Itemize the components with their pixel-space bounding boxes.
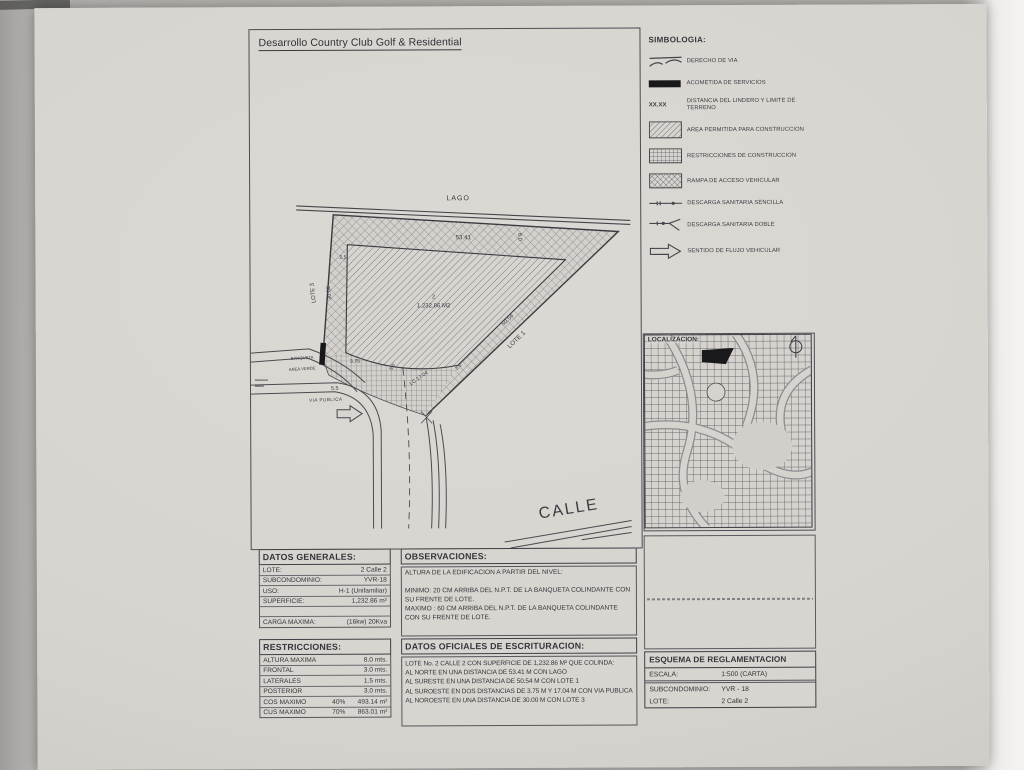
simbologia-legend: SIMBOLOGIA: DERECHO DE VIA ACOMETIDA DE … [644, 31, 813, 338]
descarga-doble-icon [649, 218, 687, 234]
area-verde-label: AREA VERDE [289, 365, 316, 372]
escrituracion-line: AL SUROESTE EN DOS DISTANCIAS DE 3.75 M … [405, 686, 633, 696]
dim-offset-right: 6.0 [516, 233, 522, 241]
legend-item-distancia-lindero: XX.XX DISTANCIA DEL LINDERO Y LIMITE DE … [649, 98, 813, 113]
row-label: SUPERFICIE: [263, 598, 304, 605]
table-row: LOTE: 2 Calle 2 [260, 565, 390, 576]
restricciones-table: RESTRICCIONES: ALTURA MAXIMA 8.0 mts. FR… [259, 639, 391, 719]
esquema-row-subcondominio: SUBCONDOMINIO: YVR - 18 [645, 683, 815, 696]
calle-label: CALLE [538, 496, 601, 523]
notes-box [644, 535, 816, 650]
legend-item-rampa: RAMPA DE ACCESO VEHICULAR [649, 173, 813, 190]
legend-item-area-permitida: AREA PERMITIDA PARA CONSTRUCCION [649, 121, 813, 140]
legend-item-acometida: ACOMETIDA DE SERVICIOS [649, 79, 813, 90]
lago-label: LAGO [446, 195, 469, 202]
datos-generales-title: DATOS GENERALES: [259, 549, 391, 566]
row-value: (16kw) 20Kva [347, 619, 387, 626]
row-label: USO: [263, 588, 279, 595]
legend-label: RESTRICCIONES DE CONSTRUCCION [687, 153, 805, 161]
esquema-box: ESQUEMA DE REGLAMENTACION ESCALA: 1:500 … [644, 651, 816, 709]
row-percent [323, 677, 345, 684]
flow-arrow-icon [337, 406, 362, 422]
row-value: 1,232.86 m² [352, 598, 387, 605]
table-row: SUBCONDOMINIO: YVR-18 [260, 575, 390, 586]
row-value: H-1 (Unifamiliar) [339, 587, 387, 594]
esquema-row-label: LOTE: [649, 698, 721, 705]
fine-print-line [647, 597, 813, 600]
paper-sheet: LAGO 53.41 6.0 2.5 LOTE 3 30.00 2 1,232.… [34, 4, 989, 770]
sentido-flujo-icon [649, 243, 687, 261]
descarga-sencilla-icon [649, 199, 687, 209]
row-label: FRONTAL [263, 667, 323, 674]
legend-item-descarga-sencilla: DESCARGA SANITARIA SENCILLA [649, 198, 813, 209]
row-percent [323, 656, 345, 663]
legend-item-sentido-flujo: SENTIDO DE FLUJO VEHICULAR [649, 242, 813, 261]
legend-label: DESCARGA SANITARIA SENCILLA [687, 200, 805, 208]
map-lots [644, 334, 813, 529]
map-open-area [680, 480, 724, 512]
observaciones-panel: OBSERVACIONES: ALTURA DE LA EDIFICACION … [401, 547, 637, 636]
esquema-row-value: 1:500 (CARTA) [721, 671, 767, 678]
legend-label: DERECHO DE VIA [687, 58, 805, 66]
esquema-row-value: 2 Calle 2 [721, 698, 748, 705]
lot-number: 2 [432, 294, 435, 300]
row-label: CUS MAXIMO [263, 709, 323, 716]
table-row: LATERALES 1.5 mts. [260, 676, 390, 687]
lot-area: 1,232.86 M2 [417, 303, 451, 309]
row-label: ALTURA MAXIMA [263, 656, 323, 663]
derecho-de-via-icon [649, 54, 687, 70]
via-publica-label: VIA PUBLICA [309, 397, 343, 403]
row-value: 1.5 mts. [349, 677, 387, 684]
table-spacer [260, 607, 390, 618]
table-row-carga: CARGA MAXIMA: (16kw) 20Kva [260, 617, 390, 627]
table-row: SUPERFICIE: 1,232.86 m² [260, 596, 390, 607]
esquema-row-label: ESCALA: [649, 671, 721, 678]
esquema-row-value: YVR - 18 [721, 686, 749, 693]
escrituracion-title: DATOS OFICIALES DE ESCRITURACION: [401, 637, 637, 654]
legend-label: RAMPA DE ACCESO VEHICULAR [687, 178, 805, 186]
row-label: LATERALES [263, 677, 323, 684]
esquema-subtable: SUBCONDOMINIO: YVR - 18 LOTE: 2 Calle 2 [645, 682, 815, 708]
row-percent: 70% [323, 709, 345, 716]
restricciones-icon [649, 149, 687, 165]
dim-street: 5.5 [331, 386, 339, 392]
row-percent [323, 667, 345, 674]
datos-generales-body: LOTE: 2 Calle 2 SUBCONDOMINIO: YVR-18 US… [259, 565, 391, 629]
map-roundabout [707, 383, 725, 401]
row-value: 3.0 mts. [349, 688, 387, 695]
observaciones-minimo: MINIMO: 20 CM ARRIBA DEL N.P.T. DE LA BA… [405, 586, 633, 605]
escrituracion-body: LOTE No. 2 CALLE 2 CON SUPERFICIE DE 1,2… [401, 655, 637, 726]
row-label: CARGA MAXIMA: [263, 619, 316, 626]
observaciones-intro: ALTURA DE LA EDIFICACION A PARTIR DEL NI… [405, 568, 633, 578]
localizacion-title: LOCALIZACION: [647, 336, 700, 343]
sheet-title: Desarrollo Country Club Golf & Residenti… [258, 36, 461, 51]
row-value: 3.0 mts. [349, 667, 387, 674]
dim-offset-left: 2.5 [339, 255, 346, 261]
legend-label: DISTANCIA DEL LINDERO Y LIMITE DE TERREN… [687, 98, 805, 113]
escrituracion-line: AL NOROESTE EN UNA DISTANCIA DE 30.00 M … [405, 695, 633, 705]
table-row: CUS MAXIMO 70% 863.01 m² [260, 707, 390, 717]
distancia-lindero-icon: XX.XX [649, 102, 687, 108]
banqueta-label: BANQUETA [291, 355, 314, 361]
datos-generales-table: DATOS GENERALES: LOTE: 2 Calle 2 SUBCOND… [259, 549, 391, 629]
legend-item-restricciones: RESTRICCIONES DE CONSTRUCCION [649, 148, 813, 165]
row-percent: 40% [323, 698, 345, 705]
row-label: POSTERIOR [263, 688, 323, 695]
esquema-row-escala: ESCALA: 1:500 (CARTA) [645, 668, 815, 682]
row-value: 8.0 mts. [349, 656, 387, 663]
observaciones-maximo: MAXIMO : 60 CM ARRIBA DEL N.P.T. DE LA B… [405, 604, 633, 623]
restricciones-title: RESTRICCIONES: [259, 639, 391, 656]
localizacion-box: LOCALIZACION: [643, 333, 816, 532]
legend-label: ACOMETIDA DE SERVICIOS [687, 80, 805, 88]
site-plan-frame: LAGO 53.41 6.0 2.5 LOTE 3 30.00 2 1,232.… [248, 27, 642, 550]
table-row: FRONTAL 3.0 mts. [260, 665, 390, 676]
row-value: 493.14 m² [349, 698, 387, 705]
simbologia-title: SIMBOLOGIA: [648, 35, 812, 45]
row-value: 863.01 m² [349, 709, 387, 716]
area-permitida-icon [649, 122, 687, 140]
legend-item-derecho-de-via: DERECHO DE VIA [649, 54, 813, 71]
table-row: POSTERIOR 3.0 mts. [260, 686, 390, 697]
escrituracion-line: LOTE No. 2 CALLE 2 CON SUPERFICIE DE 1,2… [405, 658, 633, 668]
observaciones-body: ALTURA DE LA EDIFICACION A PARTIR DEL NI… [401, 565, 637, 636]
acometida-icon [649, 79, 687, 89]
row-value: 2 Calle 2 [361, 566, 387, 573]
restricciones-body: ALTURA MAXIMA 8.0 mts. FRONTAL 3.0 mts. … [259, 655, 391, 719]
row-label: SUBCONDOMINIO: [263, 577, 322, 584]
row-label: COS MAXIMO [263, 698, 323, 705]
site-plan-drawing: LAGO 53.41 6.0 2.5 LOTE 3 30.00 2 1,232.… [249, 28, 641, 549]
legend-item-descarga-doble: DESCARGA SANITARIA DOBLE [649, 217, 813, 234]
photo-of-plan-sheet: LAGO 53.41 6.0 2.5 LOTE 3 30.00 2 1,232.… [0, 0, 1024, 768]
observaciones-title: OBSERVACIONES: [401, 547, 637, 564]
table-row: USO: H-1 (Unifamiliar) [260, 586, 390, 597]
dim-front-short: 3.75 [350, 359, 360, 365]
localizacion-map [644, 334, 813, 529]
dim-north: 53.41 [456, 234, 472, 241]
legend-label: AREA PERMITIDA PARA CONSTRUCCION [687, 127, 805, 135]
row-label: LOTE: [263, 567, 282, 574]
legend-label: DESCARGA SANITARIA DOBLE [687, 222, 805, 230]
table-row: COS MAXIMO 40% 493.14 m² [260, 697, 390, 708]
legend-label: SENTIDO DE FLUJO VEHICULAR [687, 248, 805, 256]
escrituracion-panel: DATOS OFICIALES DE ESCRITURACION: LOTE N… [401, 637, 637, 726]
esquema-row-lote: LOTE: 2 Calle 2 [645, 695, 815, 708]
esquema-title: ESQUEMA DE REGLAMENTACION [645, 652, 815, 669]
map-lake [732, 422, 792, 470]
row-value: YVR-18 [364, 577, 387, 584]
table-row: ALTURA MAXIMA 8.0 mts. [260, 655, 390, 666]
rampa-icon [649, 174, 687, 190]
row-percent [323, 688, 345, 695]
esquema-row-label: SUBCONDOMINIO: [649, 686, 721, 693]
lote3-label: LOTE 3 [310, 283, 318, 304]
